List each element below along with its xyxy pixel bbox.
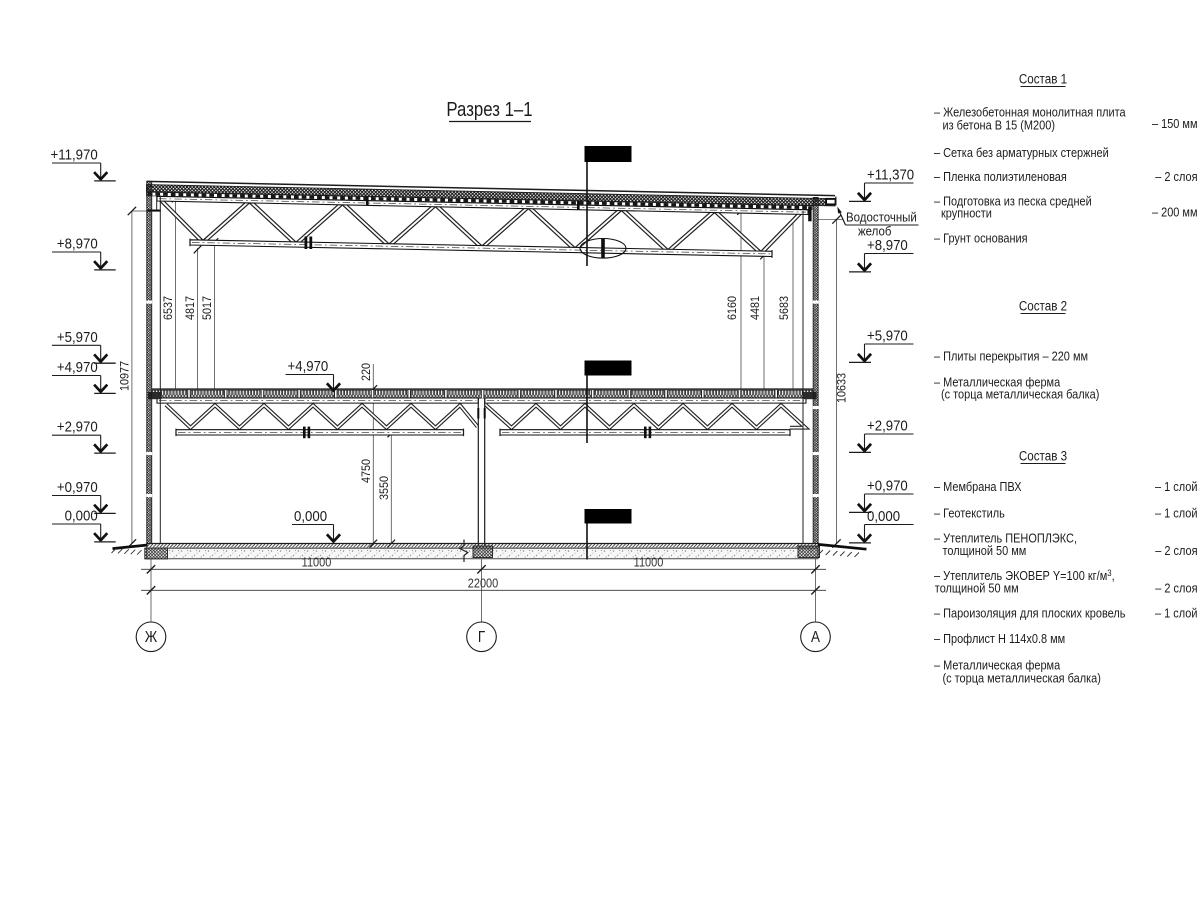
svg-text:6537: 6537 <box>162 296 176 320</box>
svg-text:Ж: Ж <box>145 629 158 646</box>
svg-text:+0,970: +0,970 <box>867 478 908 495</box>
svg-text:+4,970: +4,970 <box>288 358 329 375</box>
svg-text:4817: 4817 <box>184 296 198 320</box>
svg-text:22000: 22000 <box>468 576 499 591</box>
svg-text:Г: Г <box>478 629 485 646</box>
svg-text:Состав 2: Состав 2 <box>1019 299 1067 314</box>
svg-text:– Профлист Н 114х0.8 мм: – Профлист Н 114х0.8 мм <box>934 631 1065 646</box>
svg-text:+11,370: +11,370 <box>867 167 914 184</box>
svg-text:+8,970: +8,970 <box>867 237 908 254</box>
svg-text:+4,970: +4,970 <box>57 359 98 376</box>
svg-text:Состав 3: Состав 3 <box>1019 449 1067 464</box>
svg-text:0,000: 0,000 <box>867 508 900 525</box>
svg-text:– Мембрана ПВХ: – Мембрана ПВХ <box>934 479 1022 494</box>
svg-text:– 200 мм: – 200 мм <box>1152 205 1198 220</box>
svg-text:10633: 10633 <box>835 373 849 403</box>
svg-text:– Геотекстиль: – Геотекстиль <box>934 506 1005 521</box>
svg-text:11000: 11000 <box>634 555 664 570</box>
svg-text:– Сетка без арматурных стержне: – Сетка без арматурных стержней <box>934 145 1109 160</box>
svg-text:– 1 слой: – 1 слой <box>1155 479 1197 494</box>
svg-text:Водосточный: Водосточный <box>846 210 917 225</box>
svg-text:11000: 11000 <box>302 555 332 570</box>
svg-text:10977: 10977 <box>118 361 132 391</box>
svg-text:толщиной 50 мм: толщиной 50 мм <box>943 543 1027 558</box>
svg-text:– Пароизоляция для плоских кро: – Пароизоляция для плоских кровель <box>934 606 1125 621</box>
svg-text:А: А <box>811 629 820 646</box>
svg-text:из бетона В 15 (М200): из бетона В 15 (М200) <box>943 118 1056 133</box>
svg-text:– Плиты перекрытия – 220 мм: – Плиты перекрытия – 220 мм <box>934 349 1088 364</box>
svg-text:Разрез 1–1: Разрез 1–1 <box>446 98 532 121</box>
svg-text:220: 220 <box>359 363 373 381</box>
svg-text:+5,970: +5,970 <box>57 329 98 346</box>
svg-text:+2,970: +2,970 <box>867 418 908 435</box>
svg-text:– 2 слоя: – 2 слоя <box>1155 169 1197 184</box>
svg-text:– 2 слоя: – 2 слоя <box>1155 581 1197 596</box>
svg-text:– Грунт основания: – Грунт основания <box>934 231 1028 246</box>
svg-text:– 1 слой: – 1 слой <box>1155 606 1197 621</box>
svg-text:4750: 4750 <box>359 459 373 483</box>
svg-text:(с торца металлическая балка): (с торца металлическая балка) <box>941 387 1099 402</box>
svg-text:5683: 5683 <box>777 296 791 320</box>
svg-text:+0,970: +0,970 <box>57 479 98 496</box>
svg-text:3550: 3550 <box>377 476 391 500</box>
svg-text:(с торца металлическая балка): (с торца металлическая балка) <box>943 671 1101 686</box>
svg-text:4481: 4481 <box>748 296 762 320</box>
svg-text:+5,970: +5,970 <box>867 328 908 345</box>
svg-text:толщиной 50 мм: толщиной 50 мм <box>935 581 1019 596</box>
svg-text:0,000: 0,000 <box>65 508 98 525</box>
svg-text:+11,970: +11,970 <box>51 147 98 164</box>
svg-text:желоб: желоб <box>858 224 891 239</box>
svg-text:– Пленка полиэтиленовая: – Пленка полиэтиленовая <box>934 169 1067 184</box>
svg-text:– 1 слой: – 1 слой <box>1155 506 1197 521</box>
svg-text:+2,970: +2,970 <box>57 419 98 436</box>
svg-text:крупности: крупности <box>941 206 992 221</box>
svg-text:Состав 1: Состав 1 <box>1019 72 1067 87</box>
svg-text:+8,970: +8,970 <box>57 236 98 253</box>
svg-text:6160: 6160 <box>725 296 739 320</box>
svg-text:5017: 5017 <box>201 296 215 320</box>
svg-text:0,000: 0,000 <box>294 508 327 525</box>
svg-text:– 150 мм: – 150 мм <box>1152 116 1198 131</box>
svg-text:– 2 слоя: – 2 слоя <box>1155 543 1197 558</box>
